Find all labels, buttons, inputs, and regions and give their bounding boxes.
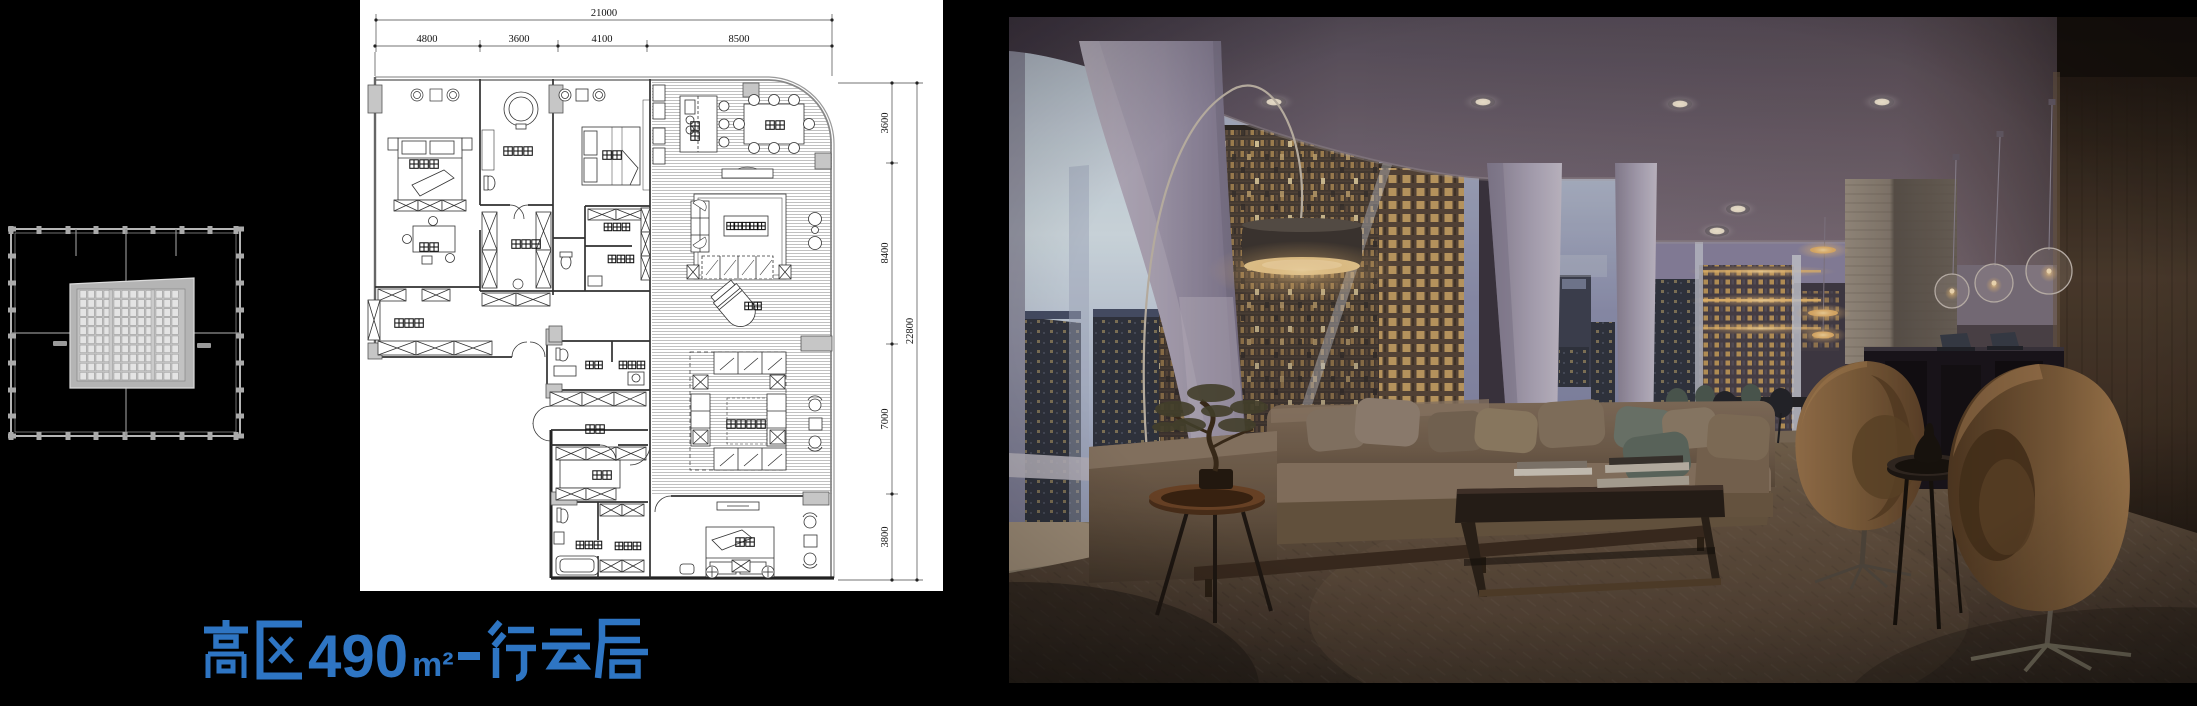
svg-text:3600: 3600 (509, 34, 530, 45)
svg-text:4100: 4100 (592, 34, 613, 45)
svg-text:4800: 4800 (417, 34, 438, 45)
svg-text:3600: 3600 (880, 113, 891, 134)
svg-text:8400: 8400 (880, 243, 891, 264)
svg-text:490: 490 (308, 623, 408, 689)
svg-text:m²: m² (412, 646, 454, 684)
svg-text:7000: 7000 (880, 409, 891, 430)
svg-text:8500: 8500 (729, 34, 750, 45)
svg-text:21000: 21000 (591, 8, 617, 19)
svg-text:22800: 22800 (905, 318, 916, 344)
svg-text:3800: 3800 (880, 527, 891, 548)
